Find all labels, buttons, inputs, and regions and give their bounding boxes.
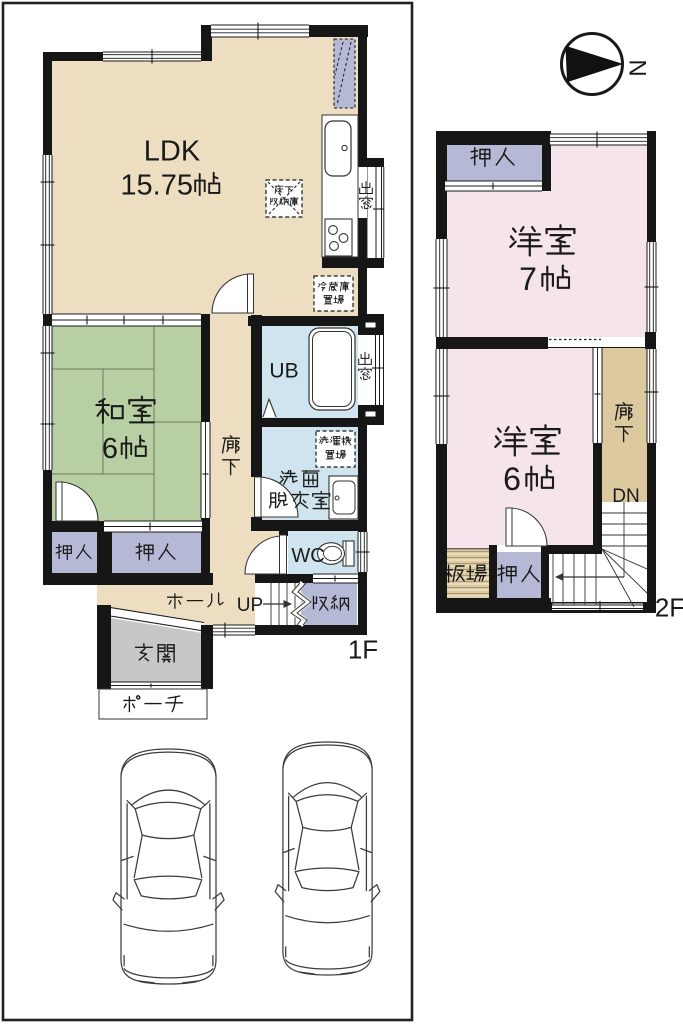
svg-text:6: 6 xyxy=(503,461,521,497)
svg-text:6: 6 xyxy=(102,433,118,465)
svg-text:2F: 2F xyxy=(655,592,683,622)
svg-text:N: N xyxy=(624,59,651,76)
svg-text:WC: WC xyxy=(291,545,324,567)
svg-text:15.75: 15.75 xyxy=(120,169,193,201)
svg-text:LDK: LDK xyxy=(144,135,201,167)
svg-text:DN: DN xyxy=(612,486,639,507)
svg-text:UB: UB xyxy=(269,360,298,383)
svg-text:1F: 1F xyxy=(348,634,378,664)
svg-text:7: 7 xyxy=(519,261,537,297)
svg-text:UP: UP xyxy=(237,595,263,616)
